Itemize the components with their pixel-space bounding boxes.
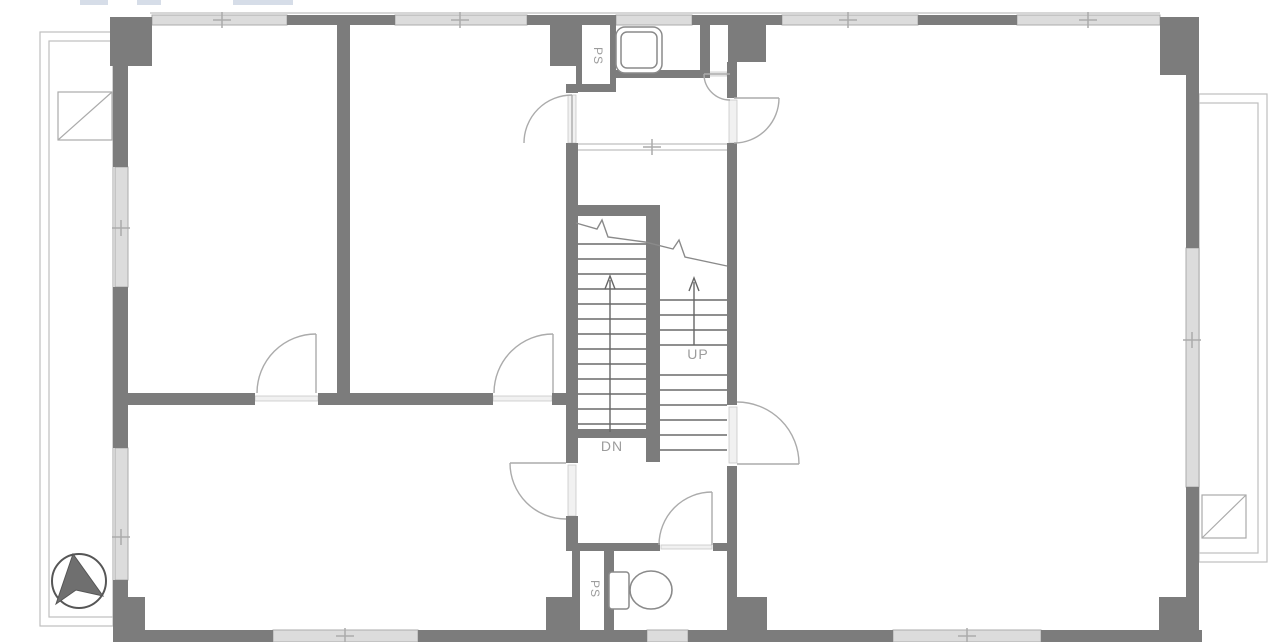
wall — [287, 15, 395, 25]
floor-plan: PS PS UP DN — [0, 0, 1280, 642]
cropped-title-fragment — [233, 0, 293, 5]
stairs-up-label: UP — [680, 346, 716, 364]
wall — [727, 143, 737, 405]
window — [115, 448, 128, 580]
cropped-title-fragment — [137, 0, 161, 5]
balcony-outline — [1199, 103, 1258, 553]
wall — [418, 630, 622, 642]
wall — [727, 62, 737, 98]
door-opening-sill — [729, 407, 737, 463]
door-swing-arc — [510, 463, 566, 519]
wall — [1186, 17, 1199, 248]
door-opening-sill — [255, 396, 318, 401]
window — [1186, 248, 1199, 487]
wall — [700, 24, 710, 78]
stairs-down-label: DN — [594, 438, 630, 456]
door-swing-arc — [524, 95, 572, 143]
door-opening-sill — [661, 545, 712, 549]
wall — [727, 466, 737, 597]
toilet-bowl — [630, 571, 672, 609]
wall — [1041, 630, 1202, 642]
wall — [727, 597, 767, 642]
wall — [713, 543, 737, 551]
wall — [113, 17, 128, 167]
wall — [576, 84, 616, 92]
north-arrow-icon — [56, 554, 103, 604]
wall — [918, 15, 1017, 25]
cropped-title-fragment — [80, 0, 108, 5]
fixture-outline — [621, 32, 657, 68]
door-opening-sill — [493, 396, 552, 401]
wall — [566, 143, 578, 463]
pipe-shaft-label-bottom: PS — [586, 577, 602, 601]
wall — [572, 429, 660, 438]
wall — [113, 287, 128, 448]
wall — [113, 630, 273, 642]
wall — [337, 24, 350, 393]
wall — [566, 543, 660, 551]
door-swing-arc — [734, 98, 779, 143]
pipe-shaft-label-top: PS — [589, 44, 605, 68]
door-opening-sill — [568, 465, 576, 516]
wall — [318, 393, 493, 405]
fixture-outline — [609, 572, 629, 609]
door-opening-sill — [729, 100, 737, 143]
window — [616, 15, 692, 25]
door-swing-arc — [737, 402, 799, 464]
balcony-outline — [1199, 94, 1267, 562]
door-swing-arc — [659, 492, 712, 545]
wall — [576, 24, 582, 84]
wall — [728, 17, 766, 62]
door-swing-arc — [494, 334, 553, 393]
wall — [572, 551, 580, 630]
wall — [546, 597, 573, 642]
wall — [566, 84, 578, 93]
wall — [622, 630, 647, 642]
window — [647, 630, 688, 642]
floor-plan-canvas — [0, 0, 1280, 642]
wall — [113, 393, 255, 405]
door-swing-arc — [257, 334, 316, 393]
wall — [688, 630, 893, 642]
